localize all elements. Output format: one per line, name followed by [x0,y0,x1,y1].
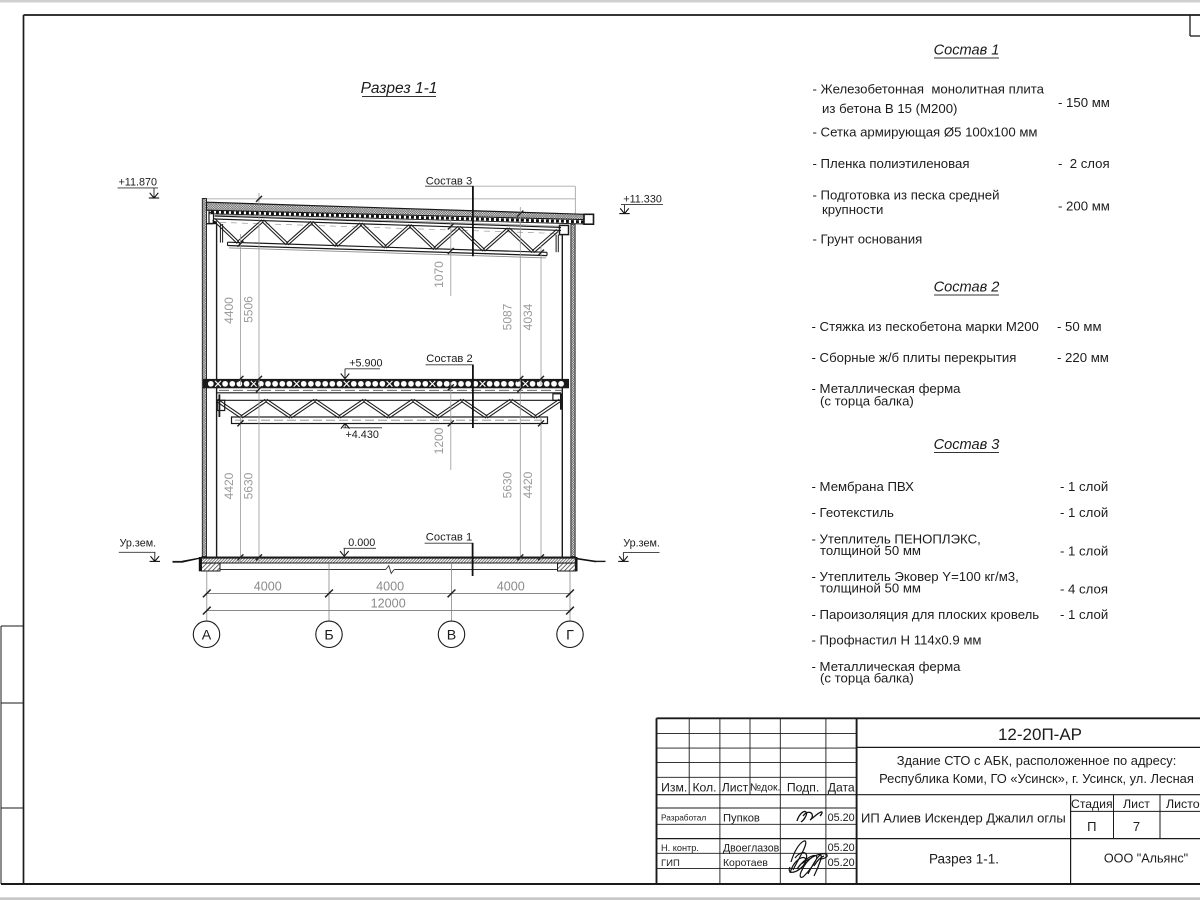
svg-text:Коротаев: Коротаев [723,858,768,869]
svg-text:Состав 3: Состав 3 [934,437,1000,453]
svg-text:Стадия: Стадия [1071,797,1113,811]
svg-text:1070: 1070 [432,261,446,288]
svg-text:толщиной 50 мм: толщиной 50 мм [820,543,921,558]
svg-text:- Подготовка из песка средней: - Подготовка из песка средней [813,188,1000,203]
svg-text:крупности: крупности [822,202,883,217]
svg-text:Здание СТО с АБК, расположенно: Здание СТО с АБК, расположенное по адрес… [897,753,1177,768]
svg-text:- 1 слой: - 1 слой [1060,479,1108,494]
svg-text:Состав 2: Состав 2 [426,353,472,365]
svg-text:Кол.: Кол. [692,781,716,795]
svg-text:+4.430: +4.430 [346,429,379,441]
svg-text:Н. контр.: Н. контр. [661,843,699,853]
svg-text:4000: 4000 [497,579,525,593]
svg-text:из бетона В 15 (М200): из бетона В 15 (М200) [822,101,957,116]
svg-text:(с торца балка): (с торца балка) [820,671,914,686]
svg-text:05.20: 05.20 [828,857,855,869]
svg-text:05.20: 05.20 [828,812,855,824]
svg-text:Разрез 1-1.: Разрез 1-1. [929,852,999,867]
svg-text:- Сборные ж/б плиты перекрытия: - Сборные ж/б плиты перекрытия [812,350,1017,365]
svg-text:Состав 1: Состав 1 [426,532,472,544]
svg-text:(с торца балка): (с торца балка) [820,394,914,409]
svg-text:05.20: 05.20 [828,842,855,854]
svg-text:5506: 5506 [242,296,256,323]
svg-text:- 2 слоя: - 2 слоя [1058,156,1110,171]
svg-text:Разрез 1-1: Разрез 1-1 [361,80,438,97]
svg-text:5087: 5087 [501,303,515,330]
svg-text:толщиной 50 мм: толщиной 50 мм [820,581,921,596]
svg-text:ООО "Альянс": ООО "Альянс" [1104,852,1188,866]
svg-text:Лист: Лист [1123,797,1150,811]
svg-text:П: П [1087,819,1096,834]
svg-text:- 200 мм: - 200 мм [1058,199,1110,214]
svg-text:Разработал: Разработал [661,813,706,823]
svg-text:- Профнастил Н 114х0.9 мм: - Профнастил Н 114х0.9 мм [812,633,982,648]
svg-text:4420: 4420 [222,472,236,499]
svg-text:- 1 слой: - 1 слой [1060,505,1108,520]
svg-text:- Сетка армирующая Ø5 100х100: - Сетка армирующая Ø5 100х100 мм [813,125,1038,140]
svg-text:- 50 мм: - 50 мм [1057,319,1102,334]
svg-text:Ур.зем.: Ур.зем. [623,538,660,550]
svg-text:- 4 слоя: - 4 слоя [1060,582,1108,597]
svg-text:№док.: №док. [750,783,780,794]
svg-text:- Геотекстиль: - Геотекстиль [812,505,895,520]
svg-text:Состав 2: Состав 2 [934,280,1000,296]
svg-text:- Мембрана ПВХ: - Мембрана ПВХ [812,479,915,494]
svg-text:ГИП: ГИП [661,858,680,869]
svg-text:+11.330: +11.330 [623,193,662,205]
svg-text:5630: 5630 [501,471,515,498]
svg-text:- 220 мм: - 220 мм [1057,350,1109,365]
svg-text:- 1 слой: - 1 слой [1060,607,1108,622]
svg-text:4000: 4000 [376,579,404,593]
svg-text:4034: 4034 [521,303,535,330]
svg-text:Состав 1: Состав 1 [934,43,1000,59]
svg-text:Дата: Дата [828,781,855,795]
svg-text:4400: 4400 [222,297,236,324]
svg-text:Подп.: Подп. [787,781,819,795]
svg-text:+5.900: +5.900 [349,358,382,370]
svg-text:- 1 слой: - 1 слой [1060,544,1108,559]
svg-text:Изм.: Изм. [661,781,687,795]
svg-text:- Пароизоляция для плоских кро: - Пароизоляция для плоских кровель [812,607,1040,622]
svg-text:1200: 1200 [432,427,446,454]
svg-text:А: А [202,628,212,644]
svg-text:ИП Алиев Искендер Джалил оглы: ИП Алиев Искендер Джалил оглы [861,811,1066,826]
svg-text:12-20П-АР: 12-20П-АР [998,725,1082,744]
svg-text:0.000: 0.000 [348,537,375,549]
svg-text:Б: Б [324,628,333,644]
svg-text:Пупков: Пупков [723,812,760,824]
svg-text:7: 7 [1133,819,1140,834]
svg-text:Г: Г [566,628,574,644]
svg-text:В: В [447,628,456,644]
svg-text:4420: 4420 [521,471,535,498]
svg-text:Республика Коми, ГО «Усинск»,: Республика Коми, ГО «Усинск», г. Усинск,… [879,771,1194,786]
svg-text:- Пленка полиэтиленовая: - Пленка полиэтиленовая [813,156,970,171]
svg-text:- Железобетонная монолитная п: - Железобетонная монолитная плита [813,82,1045,97]
svg-text:Листов: Листов [1166,797,1200,811]
svg-text:4000: 4000 [254,579,282,593]
svg-text:12000: 12000 [371,597,406,611]
svg-text:Ур.зем.: Ур.зем. [120,538,157,550]
svg-text:- Грунт основания: - Грунт основания [813,232,923,247]
svg-text:5630: 5630 [242,472,256,499]
svg-text:Лист: Лист [722,781,749,795]
svg-text:- 150 мм: - 150 мм [1058,95,1110,110]
svg-text:- Стяжка из пескобетона марки: - Стяжка из пескобетона марки М200 [812,319,1039,334]
svg-text:Двоеглазов: Двоеглазов [723,843,780,855]
svg-text:+11.870: +11.870 [119,177,158,189]
